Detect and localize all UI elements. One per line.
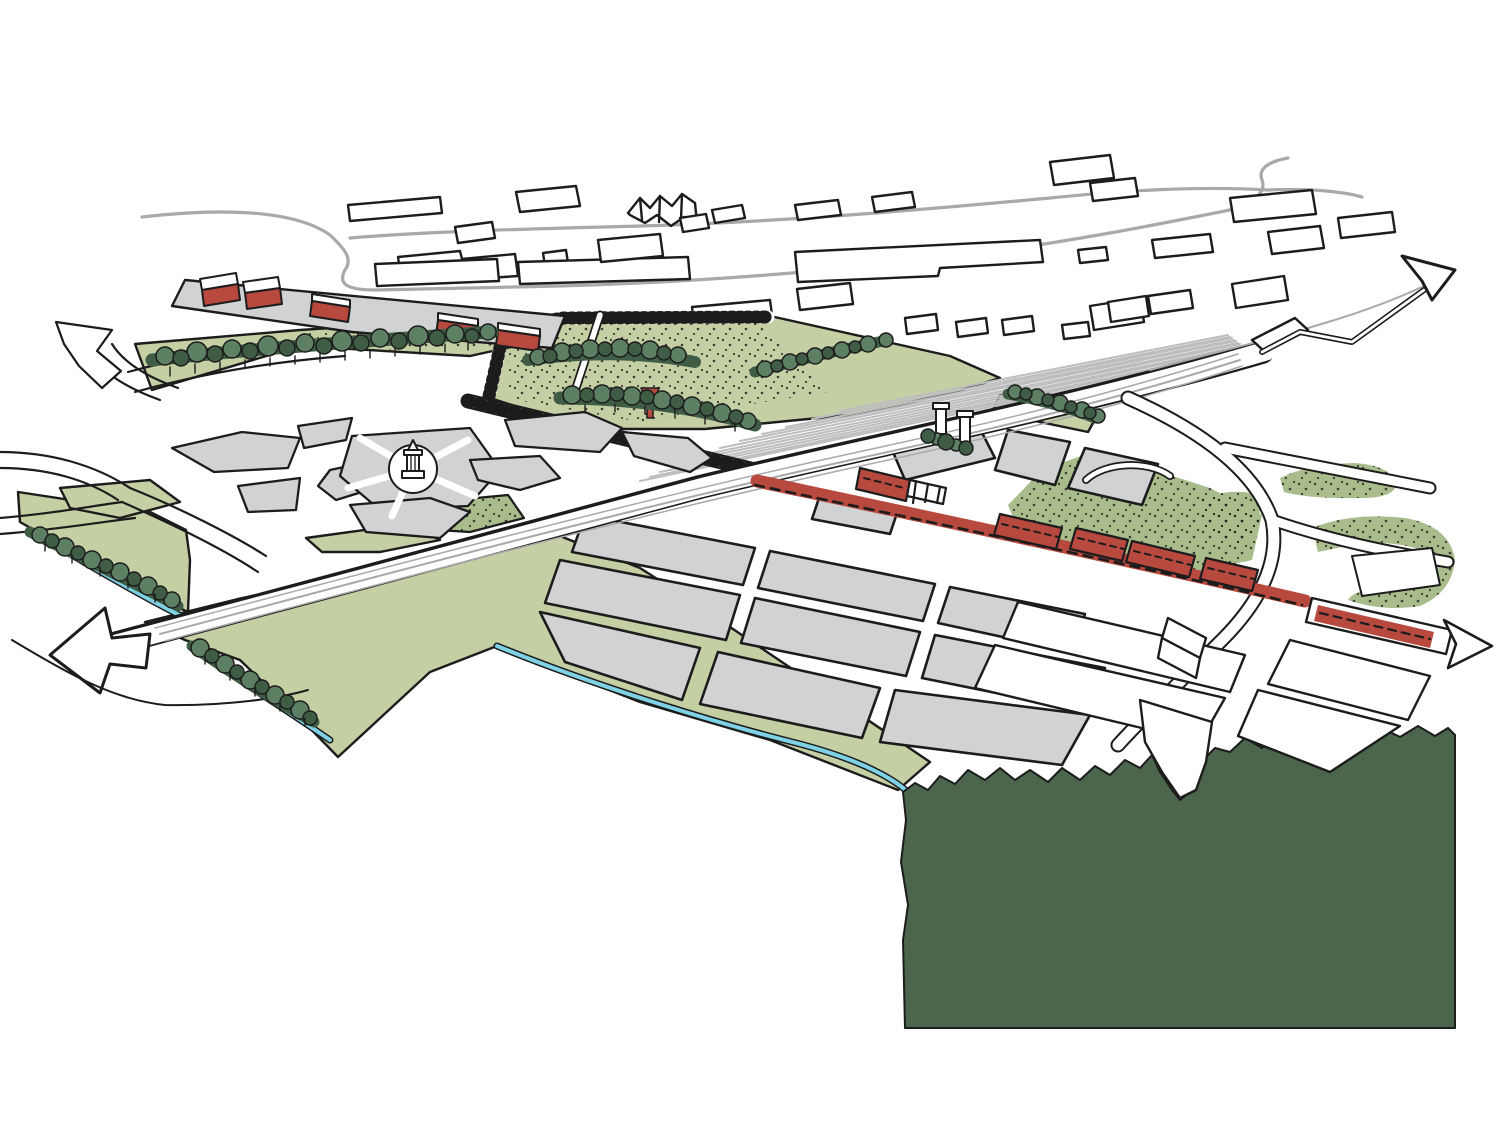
garden-parcel [622,432,712,472]
tree [391,333,407,349]
tree [156,347,174,365]
tree [593,385,611,403]
tree [569,344,583,358]
context-building [1078,247,1108,263]
tree [480,324,496,340]
tree [610,387,624,401]
tree [332,331,352,351]
context-roads [142,158,1362,290]
context-building [455,222,495,243]
tree [771,360,783,372]
tree [670,395,684,409]
tree [563,386,581,404]
context-building [872,192,915,212]
sketch-canvas [0,0,1500,1125]
tree [782,354,798,370]
context-building-long [795,240,1043,282]
tree [71,546,85,560]
tree [316,338,332,354]
context-building [1338,212,1395,238]
tree [641,341,659,359]
tree [83,551,101,569]
arrow-east-head [1444,620,1492,668]
tree [700,402,714,416]
tree [683,397,701,415]
context-building [905,314,938,334]
context-building [516,186,580,212]
garden-parcel [238,478,300,512]
station-tower-cap [957,411,973,417]
tree [1020,388,1032,400]
tower-base [402,471,424,478]
tree [653,391,671,409]
tree [353,335,369,351]
tree [296,334,314,352]
tree [657,346,671,360]
tree [1065,401,1077,413]
tree [849,341,861,353]
tree [99,559,113,573]
tree [207,346,223,362]
tree [879,333,893,347]
tree [205,649,219,663]
context-building [1062,322,1090,339]
context-building [797,283,853,310]
tree [429,330,445,346]
tree [127,572,141,586]
tree [713,404,731,422]
garden-parcel [172,432,300,472]
tree [729,410,743,424]
tree [581,340,599,358]
arrow-southwest-head [50,608,150,693]
tree [111,563,129,581]
tree [628,342,642,356]
tree [822,347,834,359]
tree [1042,394,1054,406]
context-building [375,259,499,286]
context-building [1152,234,1213,258]
tree [757,361,773,377]
tree [446,325,464,343]
garden-parcel [298,418,352,448]
tree [834,342,850,358]
tree [796,353,808,365]
tree [230,665,244,679]
tree [465,329,479,343]
tree [173,350,189,366]
tree [408,326,428,346]
context-building [598,234,663,262]
context-building [1108,296,1149,322]
tree [543,349,557,363]
red-block [1200,558,1258,591]
context-building [795,200,841,220]
tree [640,390,654,404]
tree [807,348,823,364]
tree [187,342,207,362]
tree [921,429,935,443]
tree [1084,407,1096,419]
context-building [1268,226,1324,254]
tree [242,343,258,359]
tree [280,695,294,709]
tree [623,387,641,405]
tree [959,441,973,455]
context-building [1232,276,1288,308]
tree [279,340,295,356]
context-building [1148,290,1193,314]
tree [611,339,629,357]
tree [45,534,59,548]
tree [670,347,686,363]
tree [860,336,876,352]
context-building [1090,178,1138,201]
city-block [995,430,1070,485]
tree [223,340,241,358]
station-tower [960,416,970,442]
context-building [1230,190,1316,222]
tree [371,329,389,347]
station-tower [936,408,946,434]
masterplan-sketch [0,0,1500,1125]
tree [258,336,278,356]
station-tower-cap [933,403,949,409]
context-building [956,318,988,337]
tree [580,388,594,402]
tower-body [407,455,419,471]
tree [255,680,269,694]
context-building [1002,316,1034,335]
tree [598,342,612,356]
context-building [348,197,442,221]
nw-arrow-head [56,322,121,388]
tree [938,434,954,450]
context-building [680,214,709,232]
